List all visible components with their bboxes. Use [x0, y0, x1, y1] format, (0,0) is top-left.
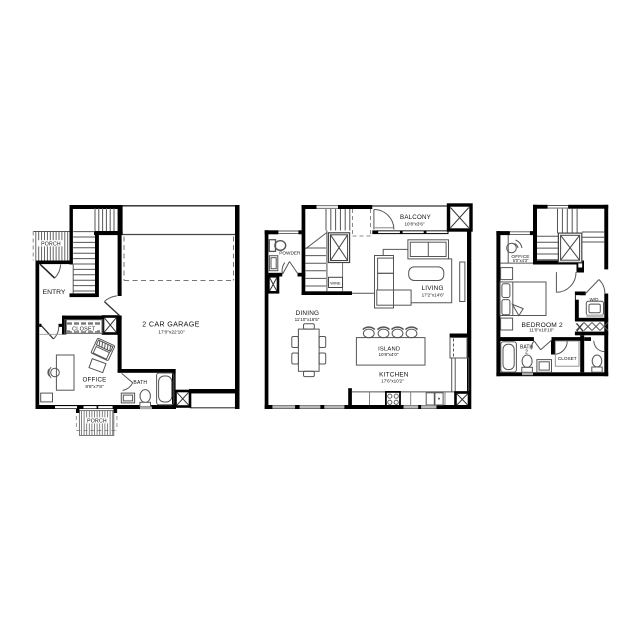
svg-text:LIVING: LIVING: [422, 285, 444, 292]
svg-text:11'10"x16'5": 11'10"x16'5": [295, 317, 320, 322]
svg-text:ENTRY: ENTRY: [43, 289, 66, 296]
svg-text:17'6"x10'2": 17'6"x10'2": [381, 379, 404, 384]
svg-text:5'0"x4'3": 5'0"x4'3": [513, 258, 529, 263]
svg-text:PORCH: PORCH: [41, 242, 61, 248]
svg-text:OFFICE: OFFICE: [83, 377, 107, 384]
svg-text:11'0"x10'10": 11'0"x10'10": [529, 327, 554, 332]
svg-text:PORCH: PORCH: [87, 419, 107, 425]
svg-text:DINING: DINING: [296, 310, 320, 317]
svg-text:BATH: BATH: [133, 380, 147, 386]
svg-text:KITCHEN: KITCHEN: [379, 371, 409, 378]
svg-text:10'8"x4'0": 10'8"x4'0": [378, 352, 398, 357]
svg-text:BALCONY: BALCONY: [400, 214, 431, 221]
svg-text:17'2"x14'6": 17'2"x14'6": [422, 292, 445, 297]
svg-text:2: 2: [525, 349, 528, 355]
svg-text:17'0"x22'10": 17'0"x22'10": [158, 330, 185, 336]
svg-text:8'8"x7'8": 8'8"x7'8": [85, 384, 104, 390]
svg-text:CLOSET: CLOSET: [558, 356, 577, 361]
svg-text:10'8"x3'6": 10'8"x3'6": [404, 221, 424, 226]
svg-text:POWDER: POWDER: [279, 251, 301, 256]
svg-text:2 CAR GARAGE: 2 CAR GARAGE: [142, 319, 200, 328]
svg-text:CLOSET: CLOSET: [72, 326, 96, 332]
svg-text:WINE: WINE: [330, 281, 341, 286]
